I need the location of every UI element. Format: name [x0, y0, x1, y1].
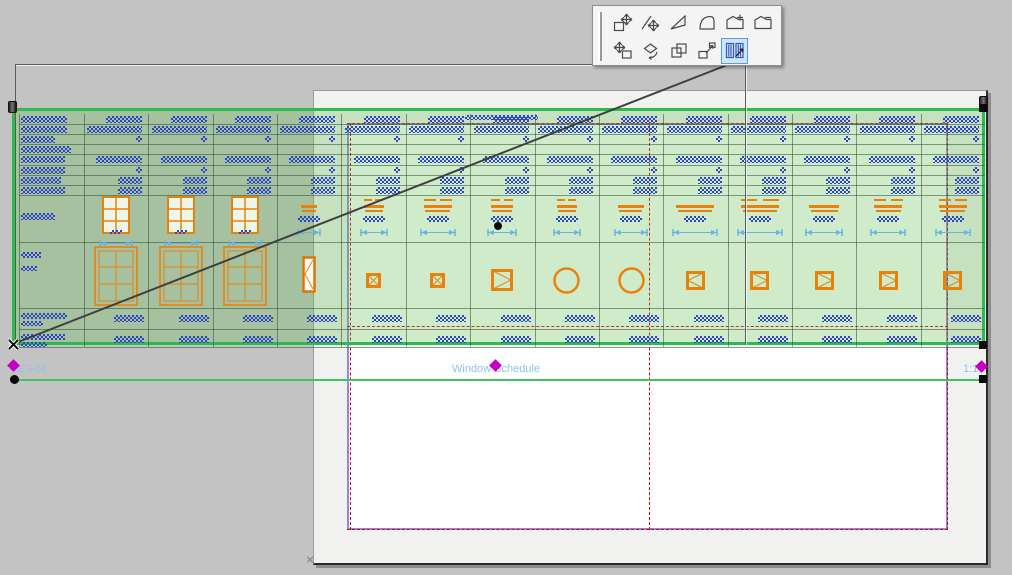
layout-workspace: A1 A2 B1 B2 ×: [0, 0, 1012, 575]
cell-greek: [633, 177, 657, 184]
cell-greek: [372, 336, 402, 343]
offset-edge-icon[interactable]: [637, 10, 664, 36]
multiply-icon[interactable]: [665, 38, 692, 64]
table-border: [84, 114, 85, 347]
plan-symbol-dash: [741, 199, 757, 201]
cell-greek: [436, 315, 466, 322]
cell-greek: [611, 156, 657, 163]
cell-greek: [225, 156, 271, 163]
cell-greek: [860, 126, 915, 133]
cell-greek: [602, 126, 657, 133]
plan-symbol-bar: [676, 205, 714, 208]
cell-greek: [565, 315, 595, 322]
cell-greek: [547, 156, 593, 163]
table-border: [728, 114, 729, 347]
cell-greek: [265, 136, 271, 142]
plan-symbol-bar: [365, 210, 383, 212]
row-header-greek: [21, 342, 47, 347]
cell-greek: [183, 177, 207, 184]
cell-greek: [523, 167, 529, 173]
plan-symbol-bar: [619, 210, 642, 212]
cell-greek: [694, 315, 724, 322]
cell-greek: [372, 315, 402, 322]
dimension-line: [870, 224, 906, 242]
cell-greek: [565, 336, 595, 343]
cell-greek: [943, 116, 979, 123]
plan-symbol-dash: [763, 199, 779, 201]
cell-greek: [428, 116, 464, 123]
table-border: [19, 144, 985, 145]
plan-symbol-dash: [557, 199, 565, 201]
window-plan-symbol: [618, 267, 645, 299]
cell-greek: [887, 315, 917, 322]
cell-greek: [557, 116, 593, 123]
cell-greek: [822, 315, 852, 322]
row-header-greek: [21, 116, 67, 123]
cell-greek: [651, 167, 657, 173]
ghost-frame-right-highlight: [746, 60, 747, 345]
cell-greek: [364, 116, 400, 123]
plan-symbol-dash: [874, 199, 886, 201]
plan-symbol-bar: [874, 205, 902, 208]
cell-greek: [114, 315, 144, 322]
rotate-icon[interactable]: [637, 38, 664, 64]
cell-greek: [877, 216, 899, 222]
dimension-line: [360, 224, 388, 242]
table-border: [470, 114, 471, 347]
row-header-greek: [21, 187, 65, 194]
cell-greek: [795, 126, 850, 133]
cell-greek: [106, 116, 142, 123]
row-header-greek: [21, 126, 67, 133]
cell-greek: [973, 136, 979, 142]
plan-symbol-bar: [743, 210, 777, 212]
drawing-title-line: [13, 379, 985, 381]
cell-greek: [247, 177, 271, 184]
dimension-line: [487, 224, 517, 242]
table-border: [19, 347, 985, 348]
narrow-window-symbol: [302, 256, 316, 298]
table-border: [19, 134, 985, 135]
cell-greek: [879, 116, 915, 123]
cell-greek: [505, 187, 529, 194]
dimension-line: [737, 224, 783, 242]
plan-symbol-bar: [809, 205, 839, 208]
cell-greek: [298, 216, 320, 222]
cell-greek: [136, 167, 142, 173]
table-border: [19, 165, 985, 166]
cell-greek: [440, 187, 464, 194]
curve-edge-icon[interactable]: [693, 10, 720, 36]
subtract-from-polygon-icon[interactable]: [749, 10, 776, 36]
dimension-line: [672, 224, 718, 242]
plan-symbol-bar: [301, 205, 317, 208]
cell-greek: [698, 177, 722, 184]
dimension-line: [553, 224, 581, 242]
dimension-line: [297, 224, 321, 242]
cell-greek: [813, 216, 835, 222]
cell-greek: [758, 315, 788, 322]
cell-greek: [569, 177, 593, 184]
cell-greek: [869, 156, 915, 163]
cell-greek: [418, 156, 464, 163]
window-plan-symbol: [553, 267, 580, 299]
cell-greek: [311, 177, 335, 184]
cell-greek: [887, 336, 917, 343]
cell-greek: [329, 167, 335, 173]
cell-greek: [621, 116, 657, 123]
cell-greek: [955, 177, 979, 184]
cell-greek: [909, 136, 915, 142]
add-to-polygon-icon[interactable]: [721, 10, 748, 36]
cell-greek: [804, 156, 850, 163]
cell-greek: [216, 126, 271, 133]
cell-greek: [329, 136, 335, 142]
cell-greek: [363, 216, 385, 222]
plan-symbol-bar: [940, 210, 965, 212]
cell-greek: [909, 167, 915, 173]
cell-greek: [179, 336, 209, 343]
cell-greek: [780, 167, 786, 173]
plan-symbol-bar: [492, 210, 512, 212]
cell-greek: [933, 156, 979, 163]
cell-greek: [758, 336, 788, 343]
cell-greek: [538, 126, 593, 133]
cell-greek: [844, 167, 850, 173]
cell-greek: [587, 136, 593, 142]
handle-top-right-square[interactable]: [979, 104, 987, 112]
cell-greek: [409, 126, 464, 133]
cell-greek: [684, 216, 706, 222]
row-header-greek: [21, 266, 37, 271]
row-header-greek: [21, 252, 41, 258]
cell-greek: [780, 136, 786, 142]
cell-greek: [891, 177, 915, 184]
cell-greek: [556, 216, 578, 222]
plan-symbol-dash: [504, 199, 513, 201]
dimension-line: [935, 224, 971, 242]
plan-symbol-bar: [678, 210, 712, 212]
handle-top-left[interactable]: [8, 101, 17, 113]
table-border: [213, 114, 214, 347]
pet-palette[interactable]: [592, 5, 782, 66]
window-dim-greek: [239, 230, 251, 234]
row-header-greek: [21, 313, 67, 319]
cell-greek: [523, 136, 529, 142]
plan-symbol-bar: [558, 210, 576, 212]
window-plan-symbol: [879, 271, 898, 295]
table-border: [19, 154, 985, 155]
cell-greek: [651, 136, 657, 142]
move-node-icon[interactable]: [609, 10, 636, 36]
plan-symbol-dash: [891, 199, 903, 201]
handle-bottom-right[interactable]: [979, 341, 987, 349]
cell-greek: [891, 187, 915, 194]
cell-greek: [676, 156, 722, 163]
cell-greek: [716, 167, 722, 173]
drag-icon[interactable]: [609, 38, 636, 64]
cell-greek: [118, 177, 142, 184]
table-border: [341, 114, 342, 347]
plan-symbol-dash: [440, 199, 452, 201]
cell-greek: [354, 156, 400, 163]
drawing-center-hotspot[interactable]: [494, 222, 502, 230]
cell-greek: [633, 187, 657, 194]
plan-symbol-bar: [364, 205, 384, 208]
table-border: [856, 114, 857, 347]
resize-icon[interactable]: [693, 38, 720, 64]
cell-greek: [822, 336, 852, 343]
cell-greek: [942, 216, 964, 222]
cell-greek: [299, 116, 335, 123]
cell-greek: [136, 136, 142, 142]
cell-greek: [394, 167, 400, 173]
cell-greek: [161, 156, 207, 163]
cell-greek: [629, 315, 659, 322]
table-border: [19, 329, 985, 330]
cell-greek: [924, 126, 979, 133]
cell-greek: [307, 315, 337, 322]
palette-grip[interactable]: [598, 12, 602, 61]
cell-greek: [716, 136, 722, 142]
cell-greek: [814, 116, 850, 123]
cell-greek: [491, 216, 513, 222]
plan-symbol-bar: [618, 205, 644, 208]
cell-greek: [307, 336, 337, 343]
dimension-line: [805, 224, 843, 242]
cell-greek: [686, 116, 722, 123]
cell-greek: [87, 126, 142, 133]
table-border: [792, 114, 793, 347]
row-header-greek: [21, 156, 65, 163]
cell-greek: [235, 116, 271, 123]
cell-greek: [201, 136, 207, 142]
cell-greek: [376, 177, 400, 184]
cell-greek: [493, 116, 529, 123]
table-border: [19, 114, 20, 347]
cell-greek: [501, 315, 531, 322]
cell-greek: [667, 126, 722, 133]
plan-symbol-bar: [939, 205, 967, 208]
cell-greek: [505, 177, 529, 184]
table-border: [599, 114, 600, 347]
cell-greek: [376, 187, 400, 194]
window-plan-symbol: [366, 273, 381, 293]
plan-symbol-dash: [424, 199, 436, 201]
cell-greek: [394, 136, 400, 142]
cell-greek: [826, 177, 850, 184]
cell-greek: [247, 187, 271, 194]
table-border: [148, 114, 149, 347]
cell-greek: [311, 187, 335, 194]
row-header-greek: [21, 321, 43, 326]
cell-greek: [118, 187, 142, 194]
cell-greek: [345, 126, 400, 133]
table-border: [19, 175, 985, 176]
handle-title-left[interactable]: [10, 375, 19, 384]
table-border: [535, 114, 536, 347]
cell-greek: [436, 336, 466, 343]
cell-greek: [243, 336, 273, 343]
cell-greek: [955, 187, 979, 194]
plan-symbol-bar: [491, 205, 513, 208]
cell-greek: [826, 187, 850, 194]
plan-symbol-bar: [302, 210, 316, 212]
fit-frame-to-drawing-icon[interactable]: [721, 38, 748, 64]
table-border: [19, 195, 985, 196]
cell-greek: [183, 187, 207, 194]
window-plan-symbol: [815, 271, 834, 295]
plan-symbol-bar: [424, 205, 452, 208]
cell-greek: [951, 315, 981, 322]
row-header-greek: [21, 334, 65, 340]
plan-symbol-dash: [491, 199, 500, 201]
cell-greek: [844, 136, 850, 142]
window-plan-symbol: [943, 271, 962, 295]
cell-greek: [749, 216, 771, 222]
window-dim-greek: [110, 230, 122, 234]
cell-greek: [629, 336, 659, 343]
offset-all-edges-icon[interactable]: [665, 10, 692, 36]
cell-greek: [951, 336, 981, 343]
cell-greek: [458, 136, 464, 142]
cell-greek: [427, 216, 449, 222]
drag-origin-x-marker: [7, 338, 20, 351]
cell-greek: [483, 156, 529, 163]
table-border: [19, 124, 985, 125]
window-casement-symbol: [223, 246, 267, 311]
plan-symbol-dash: [939, 199, 951, 201]
plan-symbol-bar: [425, 210, 450, 212]
cell-greek: [762, 177, 786, 184]
cell-greek: [440, 177, 464, 184]
window-plan-symbol: [750, 271, 769, 295]
cell-greek: [731, 126, 786, 133]
table-border: [406, 114, 407, 347]
plan-symbol-bar: [876, 210, 901, 212]
cell-greek: [750, 116, 786, 123]
cell-greek: [289, 156, 335, 163]
handle-title-right[interactable]: [979, 375, 987, 383]
cell-greek: [474, 126, 529, 133]
window-plan-symbol: [686, 271, 705, 295]
cell-greek: [179, 315, 209, 322]
dimension-line: [420, 224, 456, 242]
cell-greek: [569, 187, 593, 194]
cell-greek: [501, 336, 531, 343]
cell-greek: [458, 167, 464, 173]
window-plan-symbol: [491, 269, 513, 296]
row-header-greek: [21, 167, 65, 174]
cell-greek: [587, 167, 593, 173]
cell-greek: [265, 167, 271, 173]
window-casement-symbol: [94, 246, 138, 311]
plan-symbol-dash: [364, 199, 372, 201]
plan-symbol-dash: [568, 199, 576, 201]
cell-greek: [114, 336, 144, 343]
plan-symbol-bar: [557, 205, 577, 208]
window-dim-greek: [175, 230, 187, 234]
page-corner-hotspot[interactable]: ×: [303, 553, 317, 567]
table-border: [19, 185, 985, 186]
cell-greek: [762, 187, 786, 194]
cell-greek: [280, 126, 335, 133]
row-header-greek: [21, 136, 55, 143]
table-border: [277, 114, 278, 347]
cell-greek: [698, 187, 722, 194]
cell-greek: [171, 116, 207, 123]
row-header-greek: [21, 146, 71, 153]
cell-greek: [96, 156, 142, 163]
window-plan-symbol: [430, 273, 445, 293]
row-header-greek: [21, 177, 61, 184]
dimension-line: [614, 224, 648, 242]
cell-greek: [201, 167, 207, 173]
cell-greek: [620, 216, 642, 222]
plan-symbol-dash: [955, 199, 967, 201]
layout-grid-border-bottom: [347, 529, 948, 530]
plan-symbol-dash: [375, 199, 383, 201]
row-header-greek: [21, 213, 55, 220]
cell-greek: [694, 336, 724, 343]
plan-symbol-bar: [811, 210, 838, 212]
window-casement-symbol: [159, 246, 203, 311]
table-border: [921, 114, 922, 347]
cell-greek: [152, 126, 207, 133]
cell-greek: [973, 167, 979, 173]
cell-greek: [243, 315, 273, 322]
table-border: [663, 114, 664, 347]
drawing-name-text: IES-04: [16, 364, 47, 375]
